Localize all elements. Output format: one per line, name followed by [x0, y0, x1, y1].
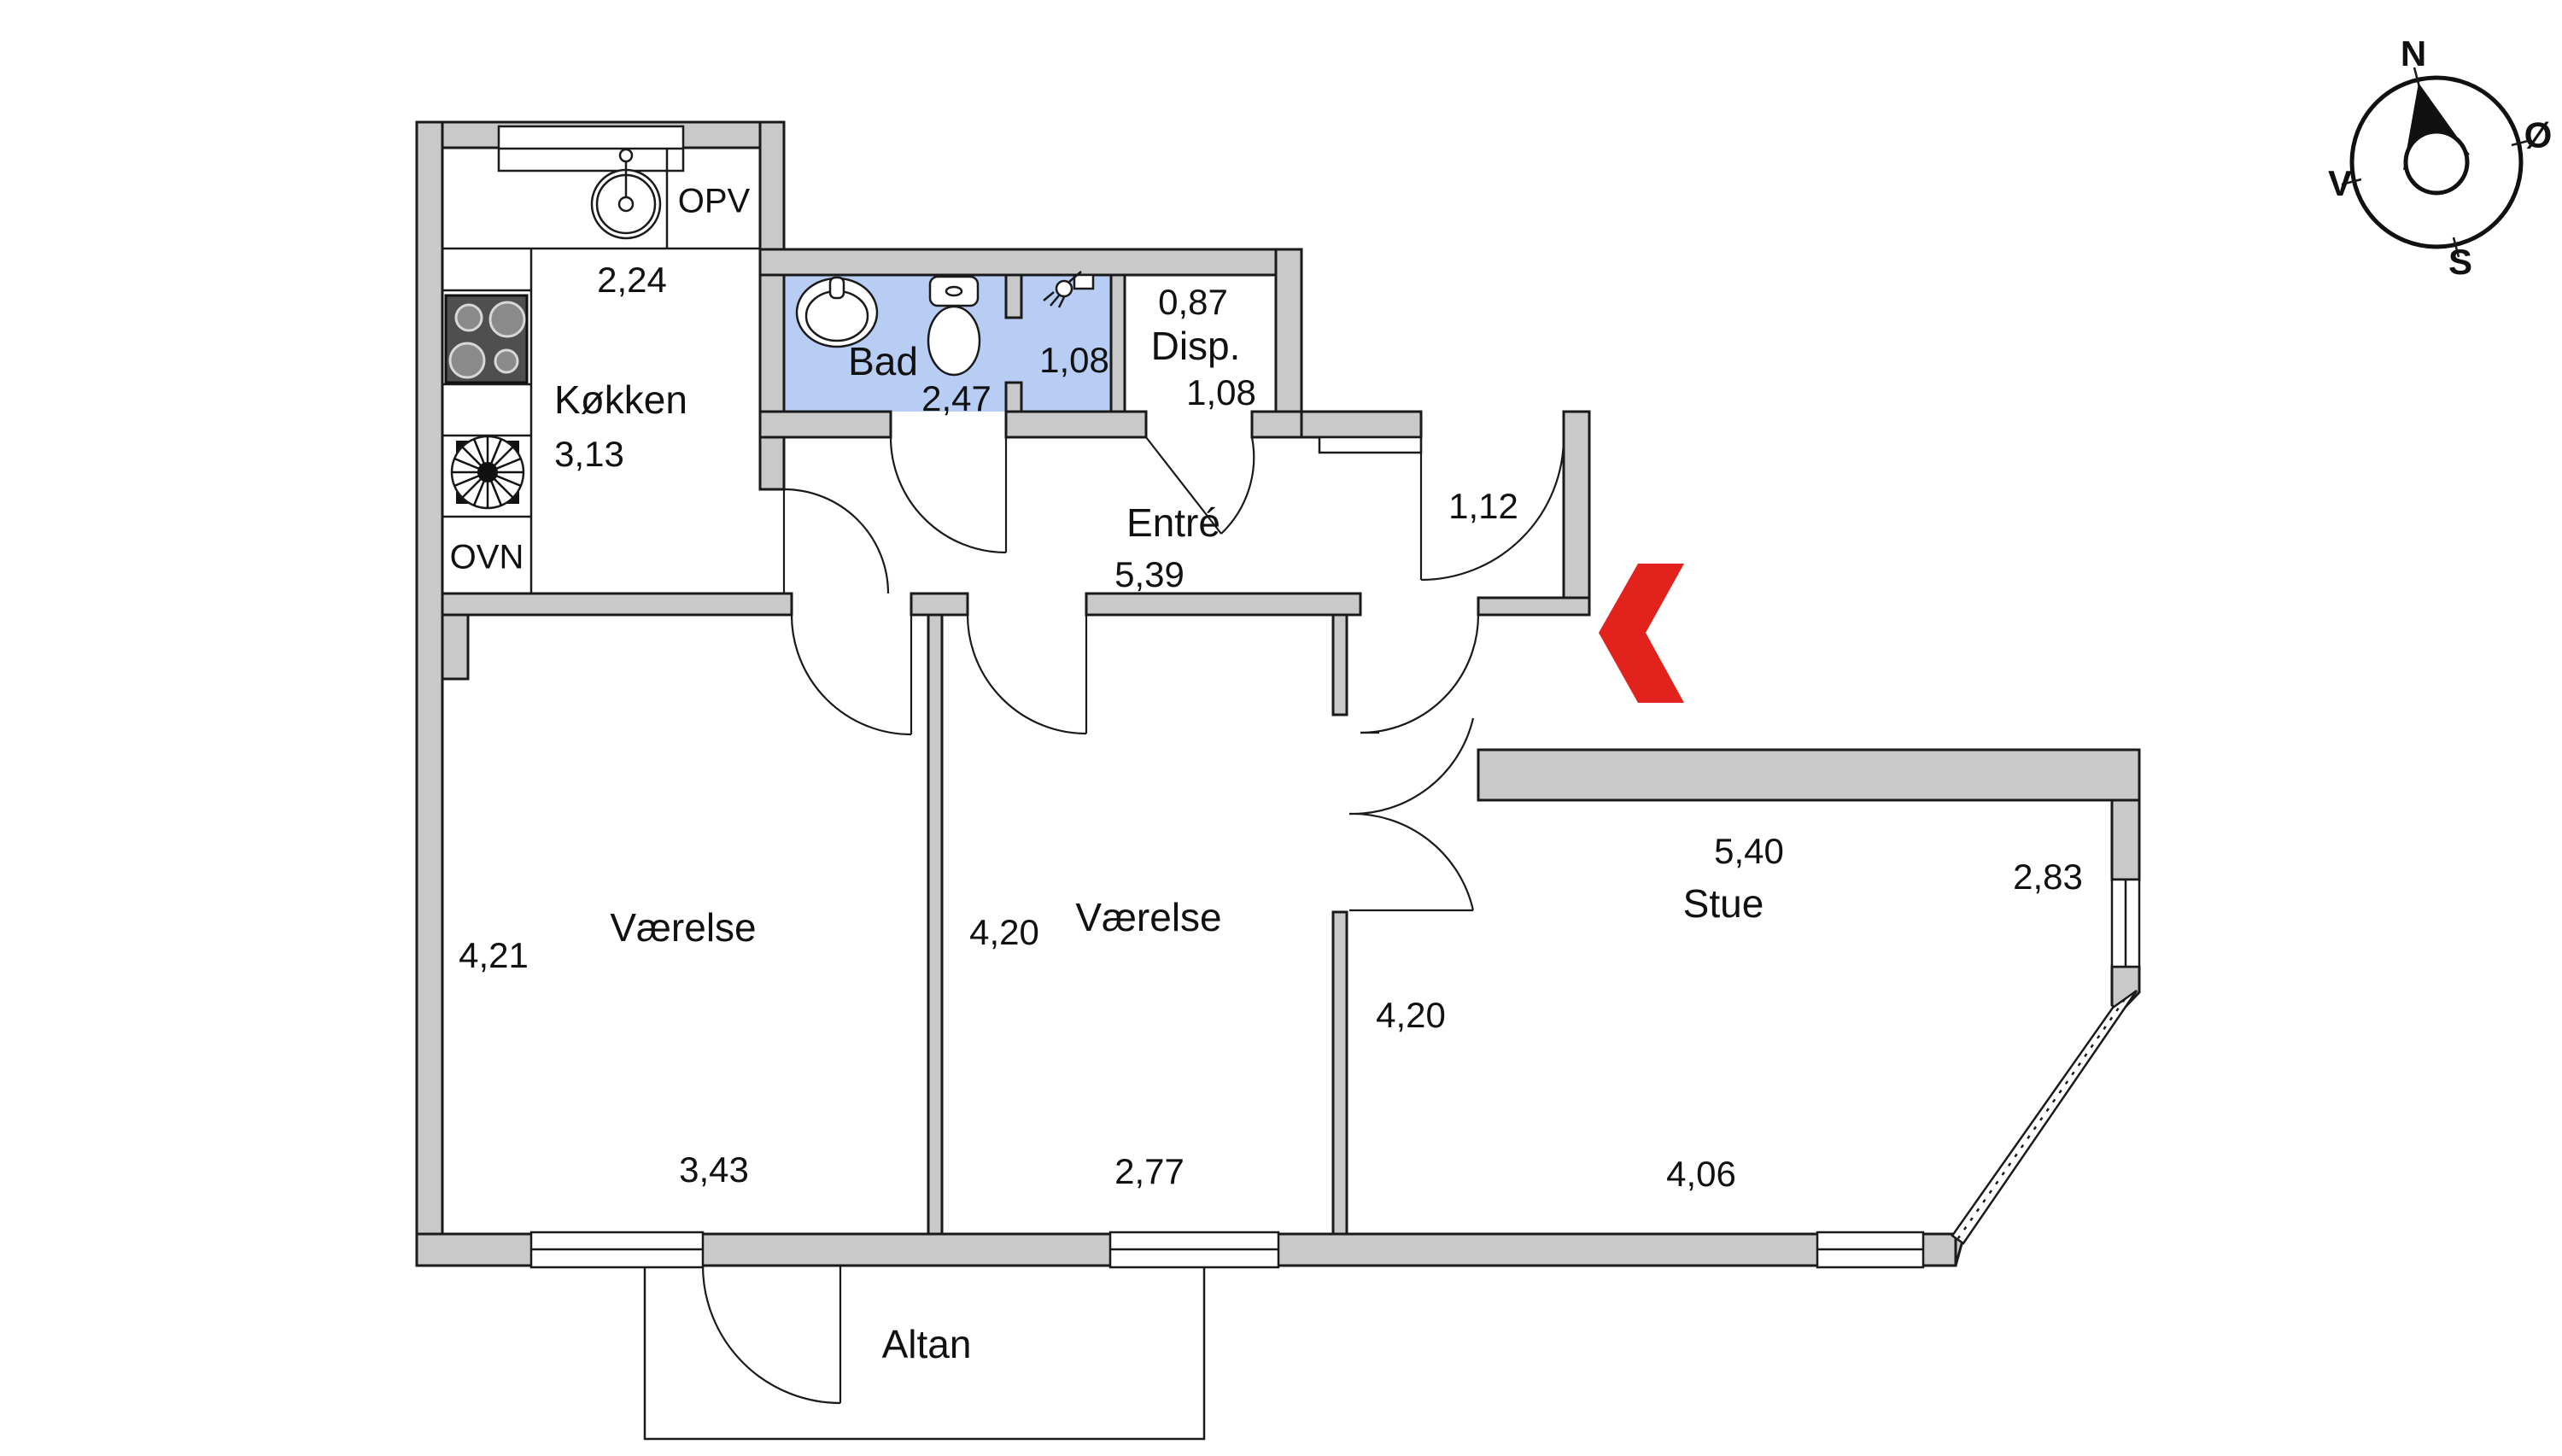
wall-storage-bottom	[1252, 412, 1301, 437]
oven-label: OVN	[450, 539, 524, 576]
bath-partition-top	[1006, 275, 1021, 318]
storage-depth: 1,08	[1186, 372, 1256, 412]
compass-east-label: Ø	[2524, 115, 2553, 155]
wall-bath-storage-divider	[1111, 275, 1125, 412]
living-bottom-dim: 4,06	[1666, 1154, 1736, 1194]
living-double-swing-door	[1349, 718, 1473, 910]
living-bay-window	[1952, 991, 2137, 1243]
living-room-door	[1360, 615, 1478, 733]
balcony-label: Altan	[882, 1322, 972, 1366]
kitchen-window	[499, 126, 683, 171]
wall-left	[417, 122, 442, 1266]
bedroom-left-width: 3,43	[679, 1149, 749, 1190]
toilet-icon	[928, 277, 980, 375]
bedroom-left-door	[792, 615, 911, 734]
bath-partition-bottom	[1006, 383, 1021, 412]
wall-hall-right	[1564, 412, 1589, 615]
bath-width: 2,47	[921, 378, 991, 418]
living-bottom-window	[1817, 1232, 1923, 1267]
storage-label: Disp.	[1151, 324, 1241, 368]
wall-hall-right-jamb	[1478, 598, 1589, 615]
kitchen-depth: 3,13	[554, 434, 624, 474]
wall-bath-bottom-right	[1006, 412, 1146, 437]
entrance-width: 1,12	[1448, 486, 1518, 526]
bath-label: Bad	[848, 339, 918, 383]
bedroom-mid-door	[968, 615, 1086, 734]
extractor-fan-icon	[452, 436, 524, 508]
wall-hallway-cap	[911, 594, 968, 615]
wall-entrance	[1301, 412, 1421, 437]
bathroom-door	[891, 437, 1006, 553]
living-right-dim: 2,83	[2013, 857, 2083, 897]
storage-width: 0,87	[1158, 282, 1228, 322]
living-top-dim: 5,40	[1714, 831, 1784, 871]
bedroom-mid-label: Værelse	[1075, 895, 1221, 939]
bedroom-left-label: Værelse	[610, 905, 756, 950]
bath-nook-width: 1,08	[1039, 340, 1109, 380]
wall-hallway-right	[1086, 594, 1360, 615]
wall-living-top	[1478, 750, 2139, 800]
washbasin-icon	[797, 278, 877, 347]
bedroom-left-window	[531, 1232, 703, 1267]
bedroom-mid-width: 2,77	[1114, 1151, 1184, 1191]
floorplan-drawing: N Ø S V OPV OVN 2,24 Køkken 3,13 Bad 2,4…	[0, 0, 2562, 1456]
bedroom-mid-depth: 4,20	[969, 912, 1039, 952]
compass-south-label: S	[2448, 242, 2472, 282]
entrance-sidelight-window	[1319, 437, 1421, 453]
wall-bath-bottom-left	[760, 412, 891, 437]
dishwasher-label: OPV	[678, 183, 751, 220]
compass-west-label: V	[2328, 163, 2352, 203]
living-left-dim: 4,20	[1376, 995, 1446, 1035]
compass-rose-icon: N Ø S V	[2328, 33, 2552, 282]
wall-hallway-left	[442, 594, 792, 615]
hall-length: 5,39	[1114, 554, 1184, 594]
entrance-arrow-icon	[1599, 564, 1684, 703]
hall-label: Entré	[1126, 500, 1220, 545]
balcony-door	[703, 1266, 840, 1403]
living-right-window	[2112, 880, 2139, 967]
bedroom-left-depth: 4,21	[459, 935, 529, 975]
wall-bath-top	[760, 249, 1301, 275]
wall-living-right	[2112, 800, 2139, 880]
windows	[499, 126, 2139, 1267]
kitchen-label: Køkken	[554, 377, 687, 422]
stove-icon	[446, 295, 527, 383]
living-label: Stue	[1683, 881, 1764, 926]
walls	[417, 122, 2139, 1266]
wall-bedroom-living-upper	[1333, 615, 1347, 715]
kitchen-width: 2,24	[597, 260, 667, 300]
compass-north-label: N	[2401, 33, 2426, 73]
wall-bedroom-living-lower	[1333, 912, 1347, 1234]
wall-left-step	[442, 615, 468, 679]
floorplan-page: N Ø S V OPV OVN 2,24 Køkken 3,13 Bad 2,4…	[0, 0, 2562, 1456]
bedroom-mid-window	[1110, 1232, 1278, 1267]
wall-entrance-recess	[1276, 249, 1301, 437]
wall-bedrooms-divider	[928, 615, 942, 1234]
kitchen-door	[784, 489, 888, 594]
